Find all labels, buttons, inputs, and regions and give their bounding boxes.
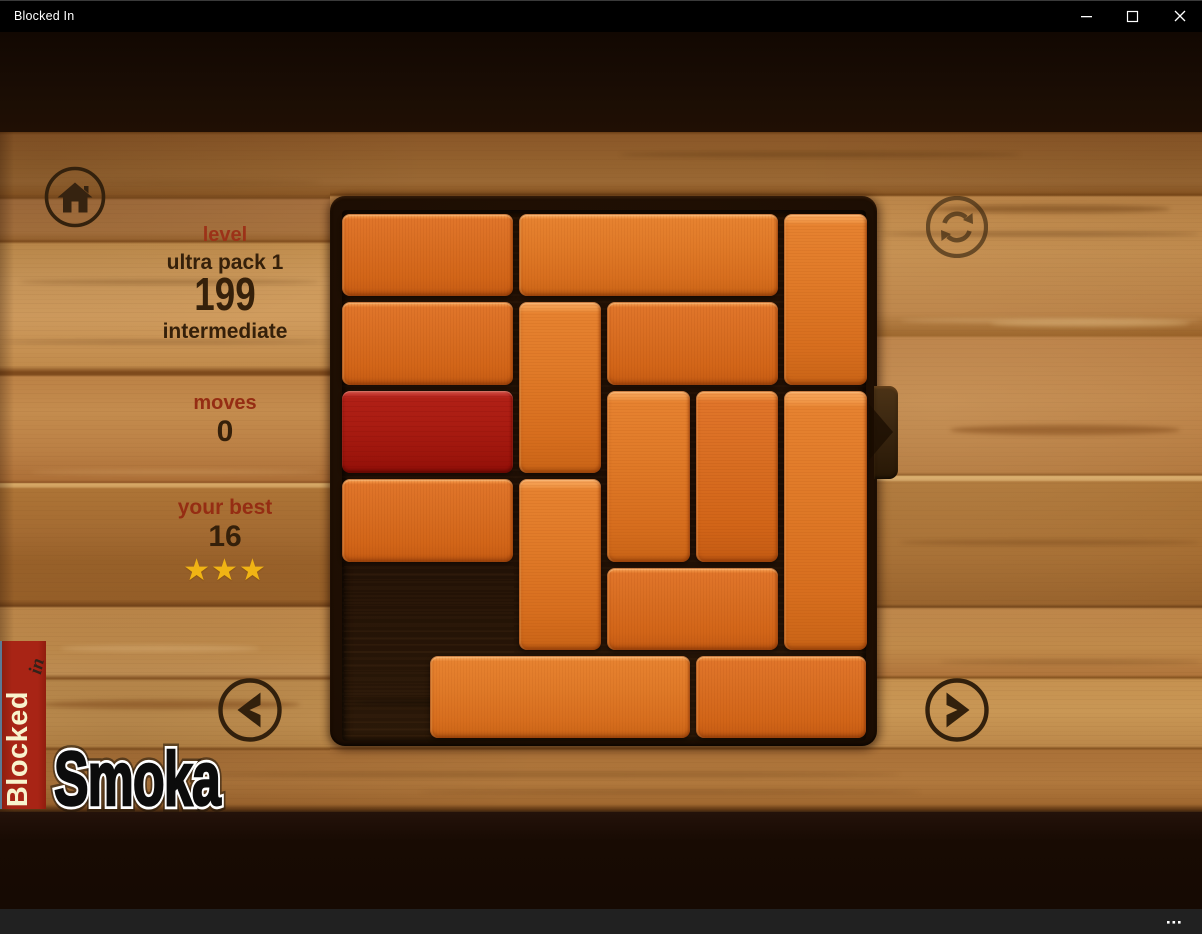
svg-text:Smoka: Smoka <box>54 736 221 821</box>
